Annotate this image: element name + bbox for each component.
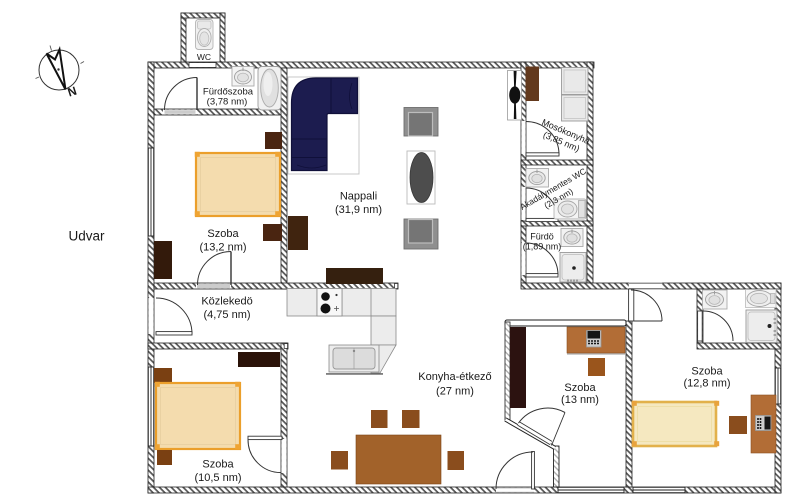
svg-text:Konyha-étkező: Konyha-étkező	[418, 371, 491, 383]
svg-text:(10,5 nm): (10,5 nm)	[194, 472, 241, 484]
svg-text:(13 nm): (13 nm)	[561, 394, 599, 406]
svg-text:Udvar: Udvar	[68, 229, 105, 244]
svg-text:(4,75 nm): (4,75 nm)	[203, 309, 250, 321]
svg-text:WC: WC	[197, 52, 211, 62]
svg-text:Közlekedö: Közlekedö	[201, 296, 252, 308]
svg-text:Szoba: Szoba	[564, 382, 596, 394]
svg-text:Szoba: Szoba	[207, 228, 239, 240]
svg-text:(27 nm): (27 nm)	[436, 386, 474, 398]
svg-text:(13,2 nm): (13,2 nm)	[199, 242, 246, 254]
svg-text:(3,78 nm): (3,78 nm)	[207, 97, 248, 108]
svg-text:(12,8 nm): (12,8 nm)	[683, 378, 730, 390]
svg-text:Fürdö: Fürdö	[530, 232, 554, 242]
svg-text:(1,89 nm): (1,89 nm)	[523, 242, 562, 252]
svg-text:Szoba: Szoba	[691, 366, 723, 378]
svg-text:Szoba: Szoba	[202, 459, 234, 471]
svg-text:(31,9 nm): (31,9 nm)	[335, 204, 382, 216]
svg-text:Nappali: Nappali	[340, 191, 377, 203]
